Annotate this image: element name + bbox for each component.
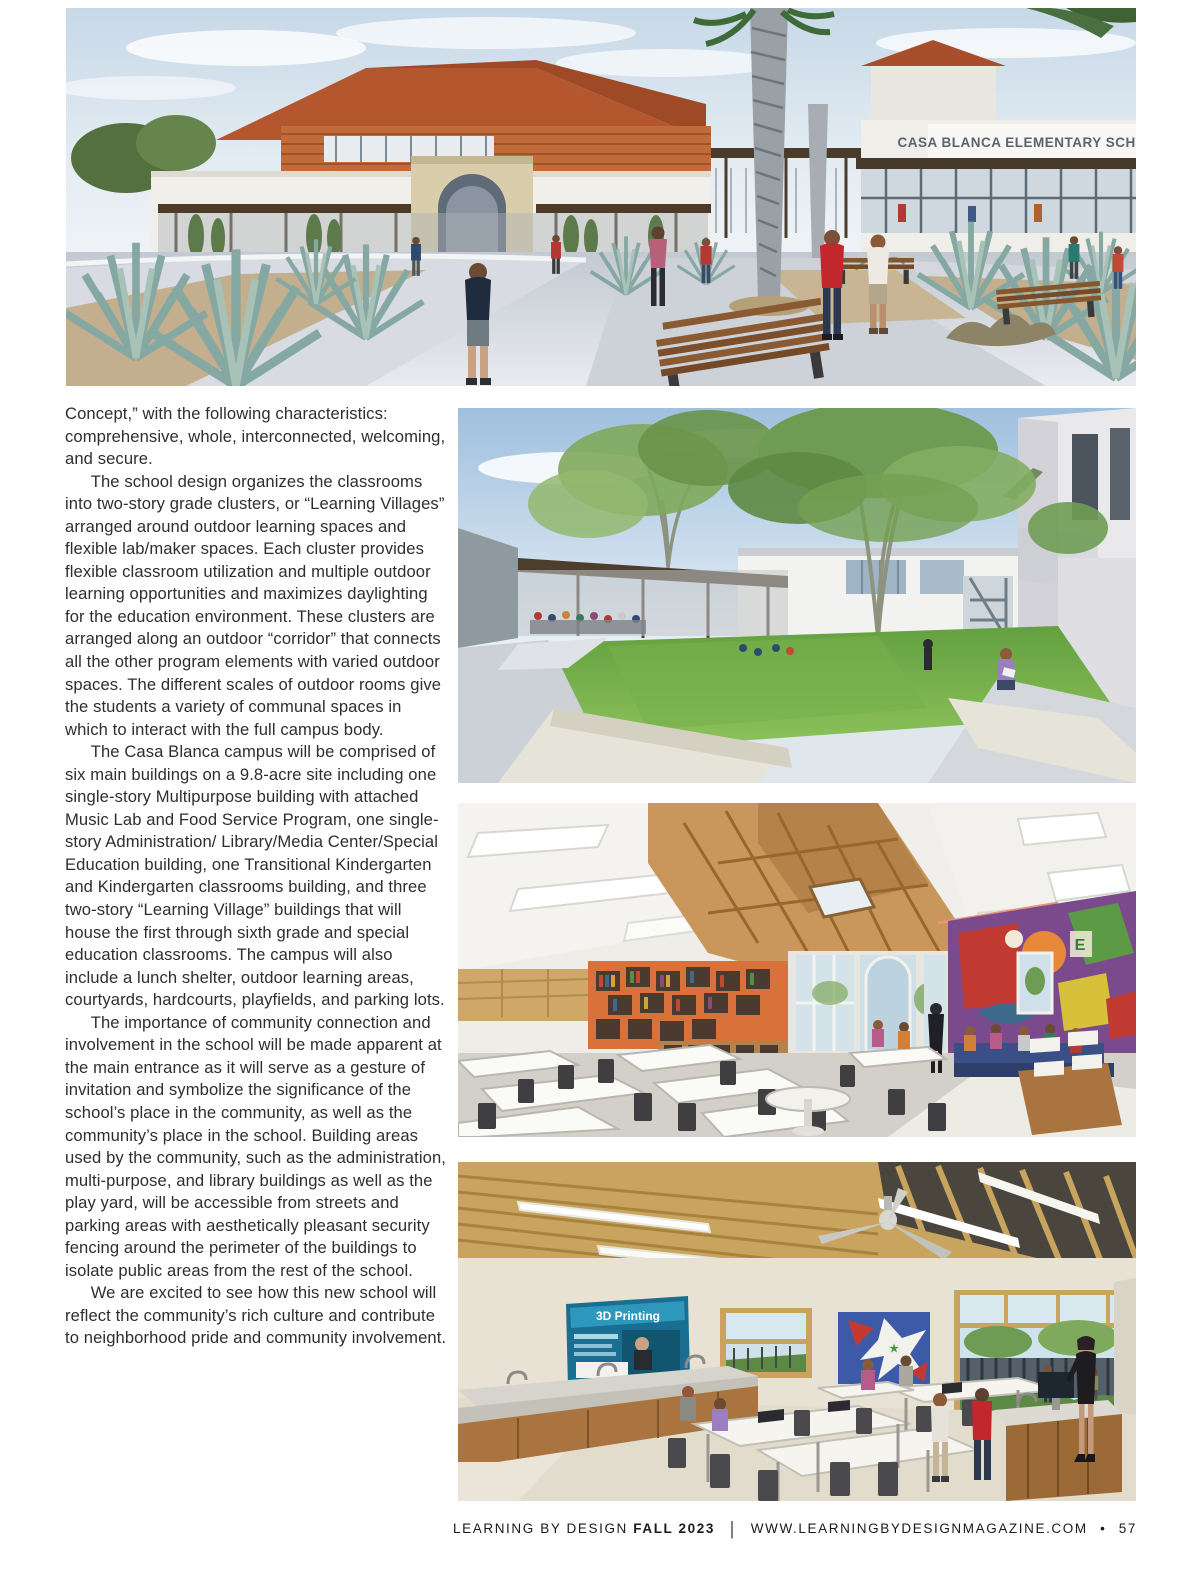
exterior-rendering-image: CASA BLANCA ELEMENTARY SCHOOL xyxy=(66,8,1136,386)
footer-magazine-title: LEARNING BY DESIGN xyxy=(453,1521,628,1536)
courtyard-rendering-image xyxy=(458,408,1136,783)
article-paragraph: Concept,” with the following characteris… xyxy=(65,403,447,471)
poster-title-text: 3D Printing xyxy=(596,1309,660,1323)
school-sign-text: CASA BLANCA ELEMENTARY SCHOOL xyxy=(897,135,1136,150)
page-footer: LEARNING BY DESIGN FALL 2023 | WWW.LEARN… xyxy=(453,1521,1137,1536)
library-rendering-art: E xyxy=(458,803,1136,1137)
article-paragraph: We are excited to see how this new schoo… xyxy=(65,1282,447,1350)
courtyard-rendering-art xyxy=(458,408,1136,783)
lab-rendering-art: 3D Printing ★ xyxy=(458,1162,1136,1501)
article-paragraph: The importance of community connection a… xyxy=(65,1012,447,1283)
exterior-rendering-art: CASA BLANCA ELEMENTARY SCHOOL xyxy=(66,8,1136,386)
library-window-wall xyxy=(788,951,948,1055)
footer-bullet: • xyxy=(1100,1521,1106,1536)
lab-comic-mural: ★ xyxy=(838,1312,930,1384)
article-paragraph: The school design organizes the classroo… xyxy=(65,471,447,742)
lab-left-window xyxy=(720,1308,812,1378)
article-text-column: Concept,” with the following characteris… xyxy=(65,403,447,1350)
footer-website: WWW.LEARNINGBYDESIGNMAGAZINE.COM xyxy=(751,1521,1088,1536)
footer-issue: FALL 2023 xyxy=(633,1521,715,1536)
svg-text:★: ★ xyxy=(889,1343,899,1355)
article-paragraph: The Casa Blanca campus will be comprised… xyxy=(65,741,447,1012)
lab-rendering-image: 3D Printing ★ xyxy=(458,1162,1136,1501)
svg-text:E: E xyxy=(1075,937,1086,954)
library-left-wall xyxy=(458,969,590,1021)
footer-page-number: 57 xyxy=(1119,1521,1137,1536)
library-rendering-image: E xyxy=(458,803,1136,1137)
footer-separator: | xyxy=(730,1518,735,1538)
magazine-page: CASA BLANCA ELEMENTARY SCHOOL xyxy=(0,0,1200,1575)
